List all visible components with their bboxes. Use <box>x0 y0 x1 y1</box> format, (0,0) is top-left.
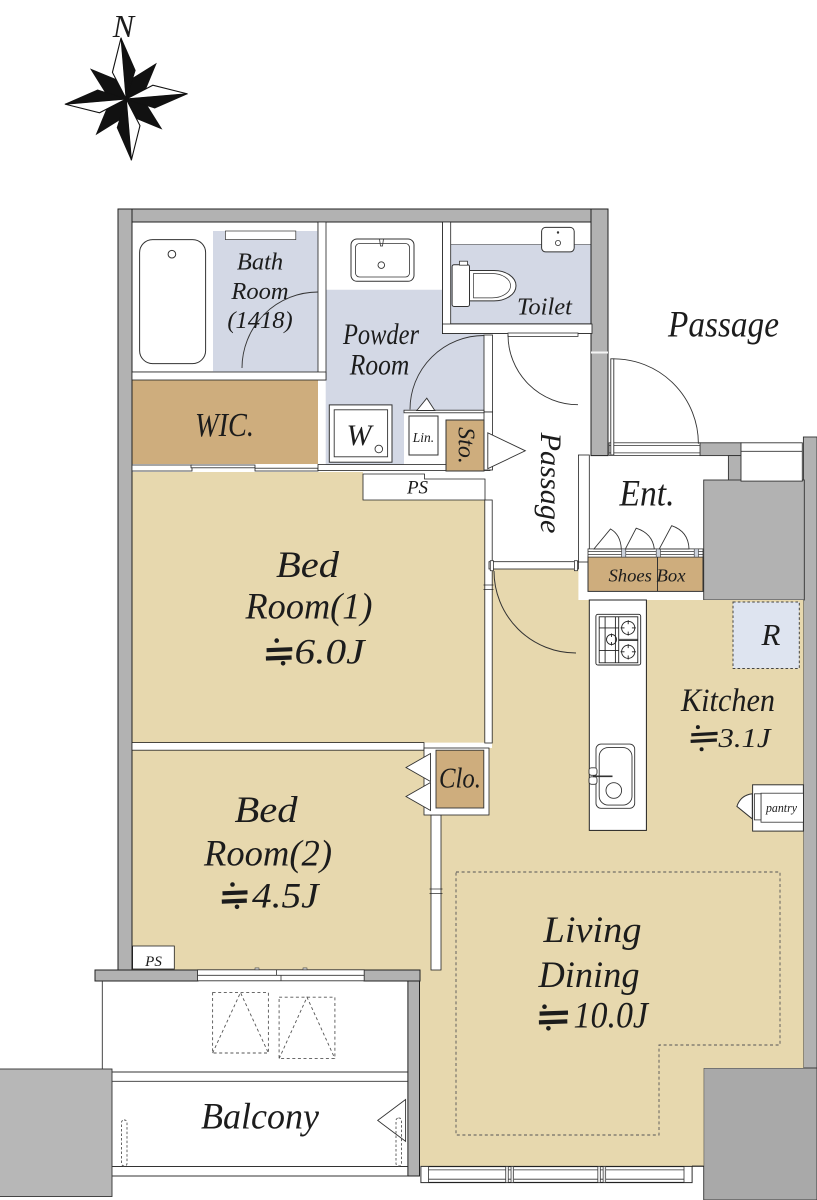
svg-text:6.0J: 6.0J <box>295 632 367 672</box>
svg-text:W: W <box>347 419 375 452</box>
svg-text:Clo.: Clo. <box>439 764 481 795</box>
svg-text:N: N <box>112 8 136 44</box>
svg-text:Ent.: Ent. <box>619 473 675 514</box>
svg-text:4.5J: 4.5J <box>252 875 321 915</box>
svg-text:Bath: Bath <box>237 249 283 276</box>
svg-text:WIC.: WIC. <box>195 407 254 444</box>
svg-text:PS: PS <box>406 478 429 499</box>
svg-text:Powder: Powder <box>342 318 419 351</box>
svg-text:Shoes Box: Shoes Box <box>609 566 686 586</box>
svg-text:R: R <box>761 617 781 652</box>
svg-text:Passage: Passage <box>667 305 779 346</box>
svg-text:Bed: Bed <box>235 790 299 831</box>
svg-text:3.1J: 3.1J <box>717 723 772 753</box>
svg-text:PS: PS <box>144 954 162 970</box>
svg-text:pantry: pantry <box>765 800 797 815</box>
svg-text:Sto.: Sto. <box>453 427 479 464</box>
svg-text:10.0J: 10.0J <box>574 995 650 1036</box>
svg-text:Bed: Bed <box>276 545 340 586</box>
svg-text:Dining: Dining <box>538 955 640 996</box>
svg-text:Lin.: Lin. <box>412 430 434 445</box>
svg-text:Room(2): Room(2) <box>203 834 332 875</box>
svg-text:Kitchen: Kitchen <box>680 683 775 719</box>
svg-text:Room: Room <box>349 349 409 382</box>
svg-text:Living: Living <box>542 910 641 951</box>
svg-text:Passage: Passage <box>534 431 567 533</box>
svg-text:(1418): (1418) <box>227 307 292 334</box>
svg-text:Balcony: Balcony <box>201 1097 320 1138</box>
svg-text:Room(1): Room(1) <box>245 587 373 628</box>
svg-text:Toilet: Toilet <box>517 294 573 321</box>
svg-text:Room: Room <box>230 278 288 305</box>
